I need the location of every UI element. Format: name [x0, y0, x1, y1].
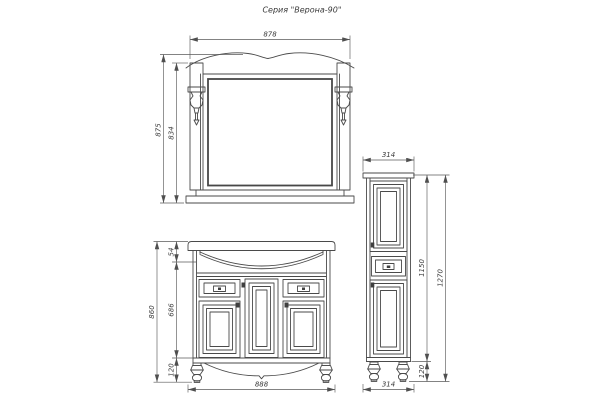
mirror-right-column [337, 63, 350, 190]
cabinet-upper-door [370, 181, 407, 252]
vanity-center-door [242, 279, 279, 358]
dim-vanity-body-height: 686 [168, 262, 194, 358]
mirror-frame [208, 79, 332, 186]
dim-vanity-leg-height: 120 [168, 358, 177, 382]
dim-label-cabinet-body-height: 1150 [418, 259, 426, 277]
mirror-right-baluster [335, 87, 352, 125]
mirror-shelf [186, 190, 354, 203]
vanity-left-door [199, 301, 240, 358]
vanity-left-door-knob [236, 303, 240, 308]
mirror-left-baluster [188, 87, 205, 125]
dim-cabinet-body-height: 1150 [412, 175, 450, 362]
cabinet-drawer [372, 257, 406, 277]
dim-label-vanity-height-total: 860 [148, 305, 156, 319]
vanity-right-leg [320, 363, 333, 382]
series-title: Серия "Верона-90" [262, 6, 341, 15]
dim-label-vanity-leg-height: 120 [168, 363, 176, 377]
washbasin-cabinet-view [188, 242, 335, 383]
vanity-apron [204, 363, 319, 379]
mirror-pediment [186, 53, 354, 74]
vanity-countertop [188, 242, 335, 251]
dim-cabinet-leg-height: 120 [409, 362, 450, 382]
cabinet-lower-door-knob [371, 283, 375, 288]
dim-mirror-height-frame: 834 [168, 63, 189, 203]
dim-vanity-width: 888 [188, 381, 335, 393]
cabinet-lower-door [370, 280, 407, 358]
dim-label-vanity-body-height: 686 [168, 303, 176, 317]
dim-cabinet-width-bottom: 314 [363, 381, 414, 393]
dim-label-cabinet-height-total: 1270 [437, 269, 445, 287]
cabinet-left-leg [368, 362, 381, 381]
vanity-center-door-knob [242, 283, 246, 288]
dim-label-cabinet-leg-height: 120 [418, 364, 426, 378]
dim-cabinet-height-total: 1270 [437, 175, 446, 382]
mirror-left-column [190, 63, 203, 190]
vanity-right-door-knob [285, 303, 289, 308]
dim-label-mirror-width: 878 [263, 31, 277, 39]
dim-vanity-top-height: 54 [168, 242, 197, 263]
cabinet-top [363, 173, 414, 178]
vanity-left-leg [191, 363, 204, 382]
dim-label-mirror-height-total: 875 [155, 123, 163, 137]
dim-label-mirror-height-frame: 834 [168, 126, 176, 139]
mirror-view [186, 53, 354, 203]
cabinet-upper-door-knob [371, 243, 375, 248]
vanity-right-drawer [283, 280, 324, 298]
dim-label-vanity-width: 888 [255, 381, 269, 389]
drawing-sheet: Серия "Верона-90" [0, 0, 600, 400]
dim-cabinet-width-top: 314 [363, 151, 414, 172]
cabinet-right-leg [397, 362, 410, 381]
vanity-left-drawer [199, 280, 240, 298]
dim-label-vanity-top-height: 54 [168, 248, 176, 257]
vanity-right-door [283, 301, 324, 358]
tall-cabinet-view [363, 173, 414, 381]
drawing-canvas: Серия "Верона-90" [0, 0, 600, 400]
vanity-basin [200, 251, 323, 269]
dim-label-cabinet-width-top: 314 [382, 151, 395, 159]
dim-label-cabinet-width-bottom: 314 [382, 381, 395, 389]
